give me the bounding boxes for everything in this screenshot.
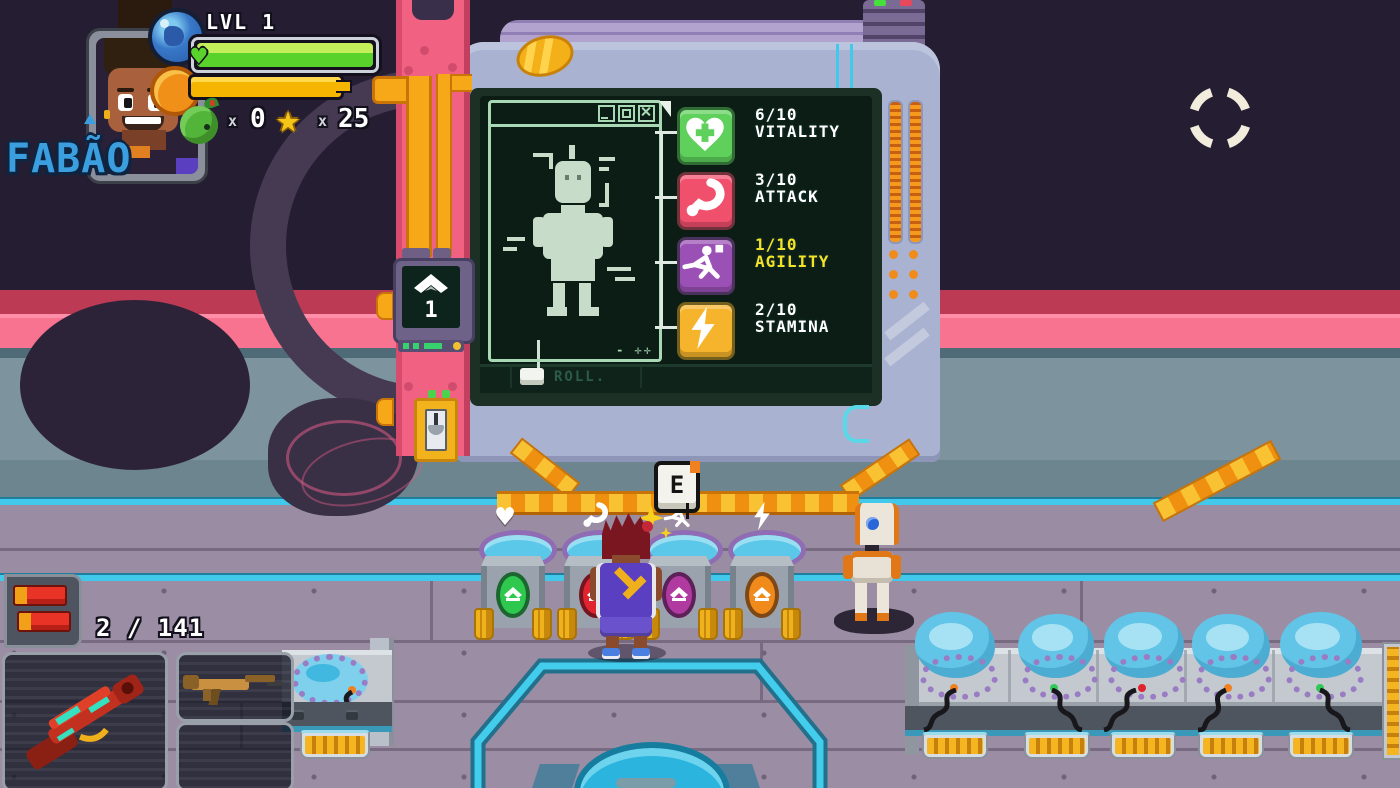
shell-panel <box>4 574 82 648</box>
shell-icon <box>17 611 71 632</box>
portrait-shoulder <box>176 158 198 174</box>
cable <box>1100 688 1144 732</box>
vat-lamp <box>745 572 779 618</box>
pool-fin <box>532 764 580 788</box>
ammo-count: 2 / 141 <box>96 614 204 642</box>
robot-arm <box>843 555 853 579</box>
vat-lamp <box>496 572 530 618</box>
left-tank-puddle <box>306 664 340 682</box>
creature-multiplier: x <box>228 112 237 130</box>
conveyor-left-cap <box>905 645 919 755</box>
prompt-key: E <box>658 471 696 499</box>
level-label: LVL 1 <box>206 10 276 34</box>
robot-torso <box>851 551 893 583</box>
vent <box>300 730 370 759</box>
star-count: 25 <box>338 104 369 134</box>
station-stamina[interactable] <box>727 500 797 650</box>
creature-berry <box>210 100 215 106</box>
cable <box>920 688 964 732</box>
vat-foot <box>781 608 801 640</box>
robot-head <box>855 503 899 545</box>
interact-key-prompt: E <box>654 461 700 513</box>
vent <box>1288 732 1354 759</box>
hair-flower <box>642 521 653 532</box>
creature-count: 0 <box>250 104 266 134</box>
weapon-slot-empty[interactable] <box>176 722 294 788</box>
robot-npc <box>843 503 903 633</box>
health-bar-fill <box>197 43 373 67</box>
xp-bar <box>188 74 344 100</box>
player-shoe <box>632 648 650 659</box>
cable <box>1308 688 1352 732</box>
rifle-icon <box>179 655 285 713</box>
vent <box>1198 732 1264 759</box>
vent-slats <box>1387 647 1399 755</box>
conveyor-right-vent <box>1382 642 1400 760</box>
weapon-slot-rifle[interactable] <box>176 652 294 722</box>
globe-continent <box>164 26 184 46</box>
star-icon: ★ <box>276 96 300 142</box>
cable <box>1040 688 1084 732</box>
robot-arm <box>891 555 901 579</box>
globe-shine <box>160 19 169 28</box>
player-vest <box>596 563 656 619</box>
player-shoe <box>602 648 620 659</box>
vent <box>922 732 988 759</box>
star-multiplier: x <box>318 112 327 130</box>
player-hair <box>602 513 650 559</box>
portrait-smile <box>122 116 164 131</box>
player-name: FABÃO <box>6 136 131 182</box>
name-arrow-decoration <box>84 114 96 124</box>
bolt-icon <box>749 500 775 532</box>
robot-leg <box>877 583 889 621</box>
portrait-eye <box>118 94 133 111</box>
crosshair-icon <box>1184 82 1256 154</box>
bolt <box>346 710 358 720</box>
station-vitality[interactable]: ♥ <box>478 500 548 650</box>
vat-foot <box>557 608 577 640</box>
cable <box>1196 688 1240 732</box>
creature-icon <box>180 98 222 146</box>
vent <box>1024 732 1090 759</box>
creature-eye <box>204 124 210 130</box>
shell-icon <box>13 585 67 606</box>
weapon-slot-shotgun[interactable] <box>2 652 168 788</box>
vent <box>1110 732 1176 759</box>
portrait-brow <box>117 88 134 92</box>
shotgun-icon <box>5 655 159 783</box>
vat-foot <box>698 608 718 640</box>
health-bar <box>188 34 382 76</box>
health-heart-icon: ♥ <box>191 42 207 72</box>
health-bar-frame <box>191 37 379 73</box>
robot-leg <box>855 583 867 621</box>
prompt-stem <box>686 503 689 519</box>
robot-eye <box>866 517 879 530</box>
xp-bar-tail <box>336 80 352 93</box>
player-character <box>586 505 668 660</box>
conveyor-seam <box>1272 650 1275 704</box>
vat-foot <box>723 608 743 640</box>
player-shorts <box>600 617 652 637</box>
left-tank-band <box>282 702 392 728</box>
conveyor-seam <box>1008 650 1011 704</box>
pool-highlight <box>616 778 676 788</box>
vat-foot <box>532 608 552 640</box>
game-screen: ROLL. <box>0 0 1400 788</box>
vat-foot <box>474 608 494 640</box>
earring <box>104 110 110 119</box>
